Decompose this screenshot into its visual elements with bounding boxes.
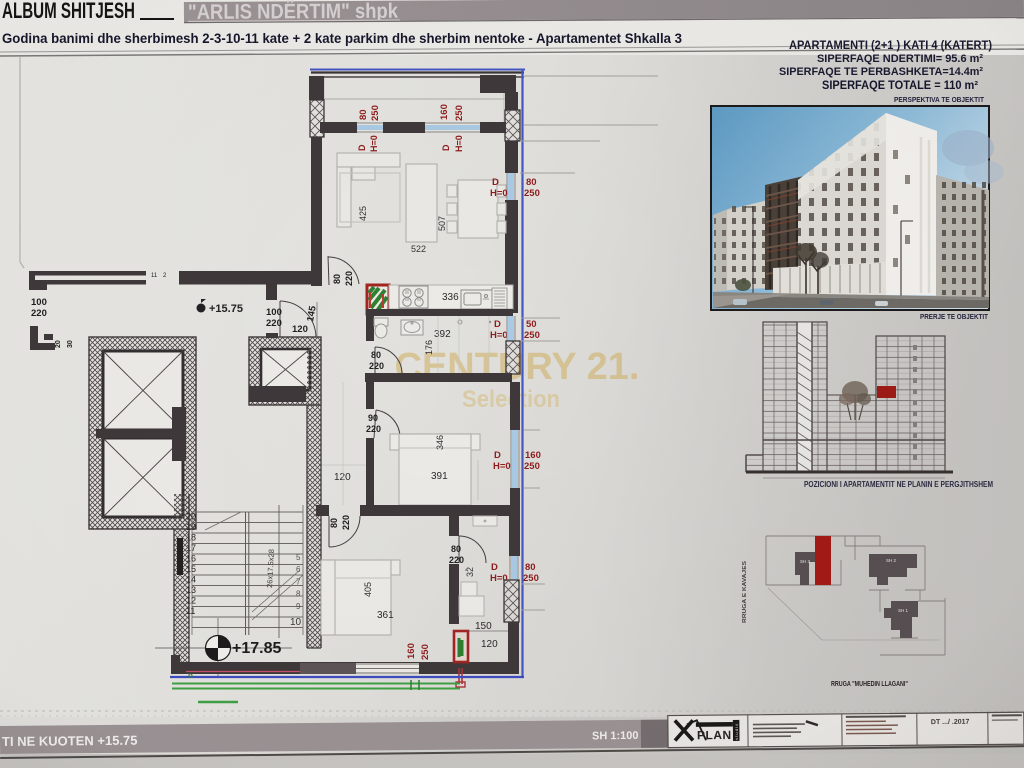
svg-text:H=0: H=0 [454, 135, 464, 152]
svg-text:SH 2: SH 2 [886, 558, 897, 563]
svg-text:250: 250 [524, 330, 540, 341]
svg-text:o: o [188, 671, 193, 680]
svg-text:100: 100 [31, 297, 47, 308]
svg-text:160: 160 [525, 450, 541, 461]
svg-text:5: 5 [296, 553, 301, 562]
svg-text:176: 176 [424, 340, 434, 355]
svg-text:220: 220 [341, 515, 351, 530]
svg-text:RRUGA E KAVAJES: RRUGA E KAVAJES [742, 561, 748, 623]
svg-text:10: 10 [290, 617, 302, 628]
svg-text:SIPERFAQE NDERTIMI= 95.6 m²: SIPERFAQE NDERTIMI= 95.6 m² [817, 53, 983, 65]
svg-text:Godina banimi dhe sherbimesh: Godina banimi dhe sherbimesh 2-3-10-11 k… [2, 30, 682, 46]
svg-text:17: 17 [186, 543, 196, 553]
svg-text:19: 19 [186, 522, 196, 532]
svg-text:13: 13 [186, 585, 196, 595]
svg-text:150: 150 [475, 621, 492, 632]
svg-text:250: 250 [524, 188, 540, 199]
svg-text:120: 120 [481, 639, 498, 650]
svg-text:20: 20 [186, 512, 196, 522]
svg-text:220: 220 [344, 271, 354, 286]
svg-text:346: 346 [435, 435, 445, 450]
svg-text:160: 160 [406, 643, 417, 659]
svg-text:90: 90 [368, 413, 378, 423]
svg-text:507: 507 [437, 216, 447, 231]
svg-text:SIPERFAQE TOTALE = 110 m²: SIPERFAQE TOTALE = 110 m² [822, 80, 978, 92]
svg-text:H=0: H=0 [490, 188, 508, 199]
svg-text:s t u d i o: s t u d i o [734, 723, 739, 740]
svg-text:11: 11 [151, 273, 158, 279]
svg-text:250: 250 [524, 461, 540, 472]
svg-text:120: 120 [334, 472, 351, 483]
svg-text:D: D [494, 319, 501, 330]
svg-text:11: 11 [186, 606, 195, 616]
svg-text:+17.85: +17.85 [232, 640, 281, 657]
svg-text:ALBUM SHITJESH: ALBUM SHITJESH [2, 0, 135, 23]
svg-text:15: 15 [186, 564, 196, 574]
svg-text:8: 8 [296, 590, 301, 599]
svg-text:405: 405 [363, 582, 373, 597]
svg-text:220: 220 [449, 555, 464, 565]
svg-text:522: 522 [411, 244, 426, 254]
svg-text:80: 80 [451, 544, 461, 554]
svg-text:392: 392 [434, 329, 451, 340]
svg-text:250: 250 [370, 105, 381, 121]
svg-text:PERSPEKTIVA TE OBJEKTIT: PERSPEKTIVA TE OBJEKTIT [894, 95, 984, 104]
svg-text:+15.75: +15.75 [209, 303, 243, 315]
svg-text:POZICIONI I APARTAMENTIT NE PL: POZICIONI I APARTAMENTIT NE PLANIN E PER… [804, 480, 993, 489]
svg-text:SH 1: SH 1 [898, 608, 909, 613]
svg-text:12: 12 [186, 596, 196, 606]
svg-text:336: 336 [442, 292, 459, 303]
svg-text:SH 1:100: SH 1:100 [592, 730, 639, 742]
svg-text:PLAN: PLAN [697, 728, 732, 742]
svg-text:250: 250 [523, 573, 539, 584]
svg-text:220: 220 [369, 361, 384, 371]
svg-text:9: 9 [296, 602, 301, 611]
svg-text:80: 80 [329, 518, 339, 528]
svg-text:D: D [494, 450, 501, 461]
svg-text:H=0: H=0 [493, 461, 511, 472]
svg-text:D: D [491, 562, 498, 573]
svg-text:80: 80 [371, 350, 381, 360]
svg-text:80: 80 [358, 109, 369, 120]
svg-text:80: 80 [525, 562, 536, 573]
svg-text:425: 425 [358, 206, 368, 221]
svg-text:APARTAMENTI (2+1 ) KATI 4 (K: APARTAMENTI (2+1 ) KATI 4 (KATERT) [789, 40, 992, 52]
svg-text:PRERJE TE OBJEKTIT: PRERJE TE OBJEKTIT [920, 312, 988, 321]
svg-text:SIPERFAQE TE PERBASHKETA=14.4m: SIPERFAQE TE PERBASHKETA=14.4m² [779, 66, 983, 78]
svg-text:SH 3: SH 3 [800, 559, 811, 564]
svg-text:50: 50 [526, 319, 537, 330]
svg-text:32: 32 [465, 567, 475, 577]
svg-text:D: D [492, 177, 499, 188]
svg-text:20: 20 [55, 340, 62, 348]
svg-text:TI NE KUOTEN +15.75: TI NE KUOTEN +15.75 [2, 733, 138, 749]
svg-text:160: 160 [439, 104, 450, 120]
svg-text:RRUGA "MUHEDIN LLAGANI": RRUGA "MUHEDIN LLAGANI" [831, 681, 908, 688]
svg-text:391: 391 [431, 471, 448, 482]
svg-text:D: D [357, 144, 367, 151]
svg-text:D: D [441, 144, 451, 151]
svg-text:80: 80 [332, 274, 342, 284]
svg-text:120: 120 [292, 324, 308, 335]
svg-text:30: 30 [67, 340, 74, 348]
svg-text:16: 16 [186, 554, 196, 564]
svg-text:220: 220 [366, 424, 381, 434]
svg-text:361: 361 [377, 610, 394, 621]
svg-text:DT .../ .2017: DT .../ .2017 [931, 719, 970, 726]
svg-text:220: 220 [31, 308, 47, 319]
svg-text:220: 220 [266, 318, 282, 329]
svg-text:250: 250 [454, 105, 465, 121]
svg-text:250: 250 [420, 644, 431, 660]
svg-text:100: 100 [266, 307, 282, 318]
svg-text:18: 18 [186, 533, 196, 543]
svg-text:14: 14 [186, 575, 196, 585]
svg-text:H=0: H=0 [369, 135, 379, 152]
svg-text:80: 80 [526, 177, 537, 188]
svg-text:H=0: H=0 [490, 330, 508, 341]
